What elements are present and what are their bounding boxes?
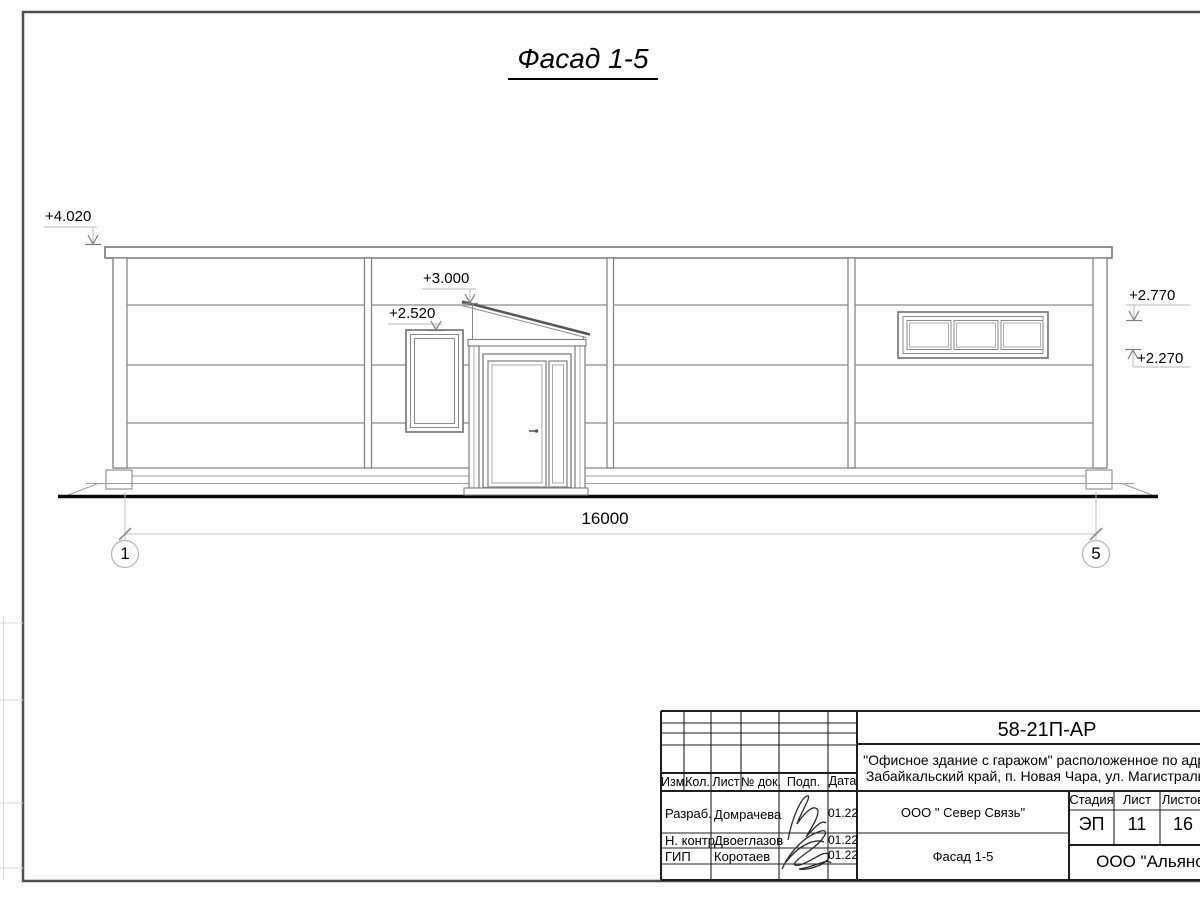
tb-name-razrab: Домрачева [714, 808, 781, 822]
tb-header-podp: Подп. [779, 776, 828, 790]
tb-date-gip: 01.22 [828, 849, 857, 862]
entrance-porch [462, 302, 590, 496]
elevation-canopy-label: +3.000 [423, 271, 469, 288]
tb-header-kol: Кол. [684, 776, 711, 790]
tb-doc-code: 58-21П-АР [857, 719, 1200, 741]
tb-header-list: Лист [711, 776, 741, 790]
pilasters [113, 258, 1107, 468]
tb-header-doc: № док. [741, 776, 779, 790]
tb-header-sheets: Листов [1160, 793, 1200, 807]
dimension-axes [112, 492, 1110, 568]
plinth [68, 470, 1152, 495]
left-margin-table [0, 616, 23, 880]
tb-date-razrab: 01.22 [828, 807, 857, 820]
tb-header-sheet: Лист [1114, 793, 1160, 807]
elevation-window-right-bottom-label: +2.270 [1137, 351, 1183, 368]
door-leaf [488, 361, 546, 487]
window-right [898, 312, 1048, 358]
elevation-window-left-label: +2.520 [389, 306, 435, 323]
elevation-window-right-top-label: +2.770 [1129, 288, 1175, 305]
canopy-slope [462, 302, 590, 335]
tb-role-razrab: Разраб. [665, 807, 712, 821]
window-left [406, 330, 463, 432]
tb-stage-value: ЭП [1069, 815, 1114, 835]
axis-label-1: 1 [111, 545, 139, 564]
tb-role-nkontr: Н. контр. [665, 834, 719, 848]
tb-date-nkontr: 01.22 [828, 834, 857, 847]
drawing-sheet: Фасад 1-5 +4.020 +3.000 +2.520 +2.770 +2… [0, 0, 1200, 900]
tb-header-stage: Стадия [1069, 793, 1114, 807]
tb-header-data: Дата [828, 775, 857, 789]
door-sidelight [549, 361, 567, 487]
drawing-title: Фасад 1-5 [508, 44, 658, 80]
axis-label-5: 5 [1082, 545, 1110, 564]
tb-company: ООО "Альянс" [1069, 853, 1200, 872]
door-threshold [464, 488, 588, 495]
tb-role-gip: ГИП [665, 850, 691, 864]
tb-header-izm: Изм. [661, 776, 684, 790]
tb-sheet-title: Фасад 1-5 [857, 850, 1069, 864]
tb-project-line1: "Офисное здание с гаражом" расположенное… [857, 753, 1200, 768]
elevation-parapet-label: +4.020 [45, 209, 91, 226]
tb-sheet-value: 11 [1114, 815, 1160, 835]
tb-client: ООО " Север Связь" [857, 806, 1069, 820]
tb-name-gip: Коротаев [714, 850, 770, 864]
tb-name-nkontr: Двоеглазов [714, 834, 783, 848]
parapet-cap [105, 247, 1112, 258]
dimension-total-label: 16000 [555, 510, 655, 529]
tb-sheets-value: 16 [1160, 815, 1200, 835]
tb-project-line2: Забайкальский край, п. Новая Чара, ул. М… [857, 769, 1200, 784]
